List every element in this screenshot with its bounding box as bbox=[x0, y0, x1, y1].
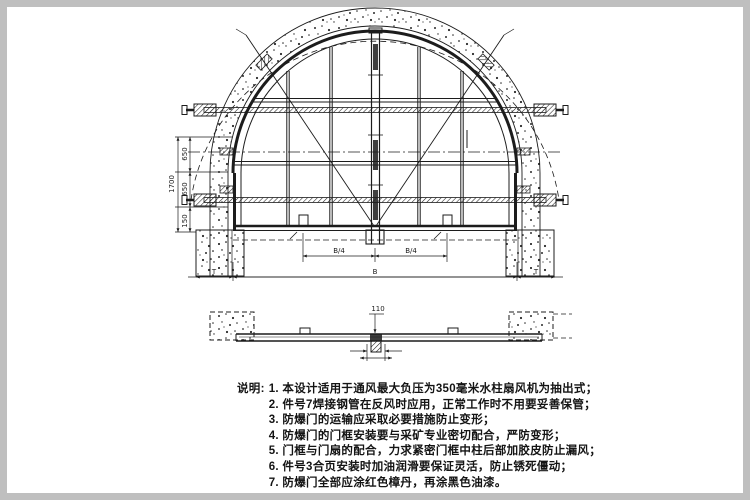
section-right-block bbox=[509, 312, 553, 340]
dim-bottom-center: B bbox=[373, 268, 378, 276]
notes-label: 说明: bbox=[237, 382, 265, 491]
blueprint-page: 1700 650 650 150 B/4 B/4 T B T bbox=[0, 0, 750, 500]
section-door-plate bbox=[236, 328, 542, 352]
front-view bbox=[182, 8, 568, 276]
note-line: 2. 件号7焊接钢管在反风时应用，正常工作时不用要妥善保管； bbox=[269, 398, 637, 414]
note-line: 6. 件号3合页安装时加油润滑要保证灵活，防止锈死僵动； bbox=[269, 460, 637, 476]
note-line: 5. 门框与门扇的配合，力求紧密门框中柱后部加胶皮防止漏风； bbox=[269, 444, 637, 460]
dim-bottom-right: T bbox=[533, 268, 539, 276]
dim-seg-top: 650 bbox=[181, 147, 189, 160]
dim-bottom-left: T bbox=[211, 268, 217, 276]
note-line: 1. 本设计适用于通风最大负压为350毫米水柱扇风机为抽出式； bbox=[269, 382, 637, 398]
section-height-label: 110 bbox=[371, 305, 384, 313]
center-column bbox=[366, 28, 384, 244]
note-line: 4. 防爆门的门框安装要与采矿专业密切配合，严防变形； bbox=[269, 429, 637, 445]
dim-quarter-left: B/4 bbox=[333, 247, 345, 255]
dim-total-height: 1700 bbox=[168, 175, 176, 193]
left-pier bbox=[196, 230, 244, 276]
section-left-block bbox=[210, 312, 254, 340]
notes-block: 说明: 1. 本设计适用于通风最大负压为350毫米水柱扇风机为抽出式； 2. 件… bbox=[237, 382, 637, 491]
dim-quarter-right: B/4 bbox=[405, 247, 417, 255]
right-pier bbox=[506, 230, 554, 276]
quarter-dimension-chain bbox=[303, 233, 447, 262]
note-line: 3. 防爆门的运输应采取必要措施防止变形； bbox=[269, 413, 637, 429]
note-line: 7. 防爆门全部应涂红色樟丹，再涂黑色油漆。 bbox=[269, 476, 637, 492]
dim-seg-bottom: 150 bbox=[181, 214, 189, 227]
section-view bbox=[210, 312, 572, 361]
dim-seg-mid: 650 bbox=[181, 182, 189, 195]
